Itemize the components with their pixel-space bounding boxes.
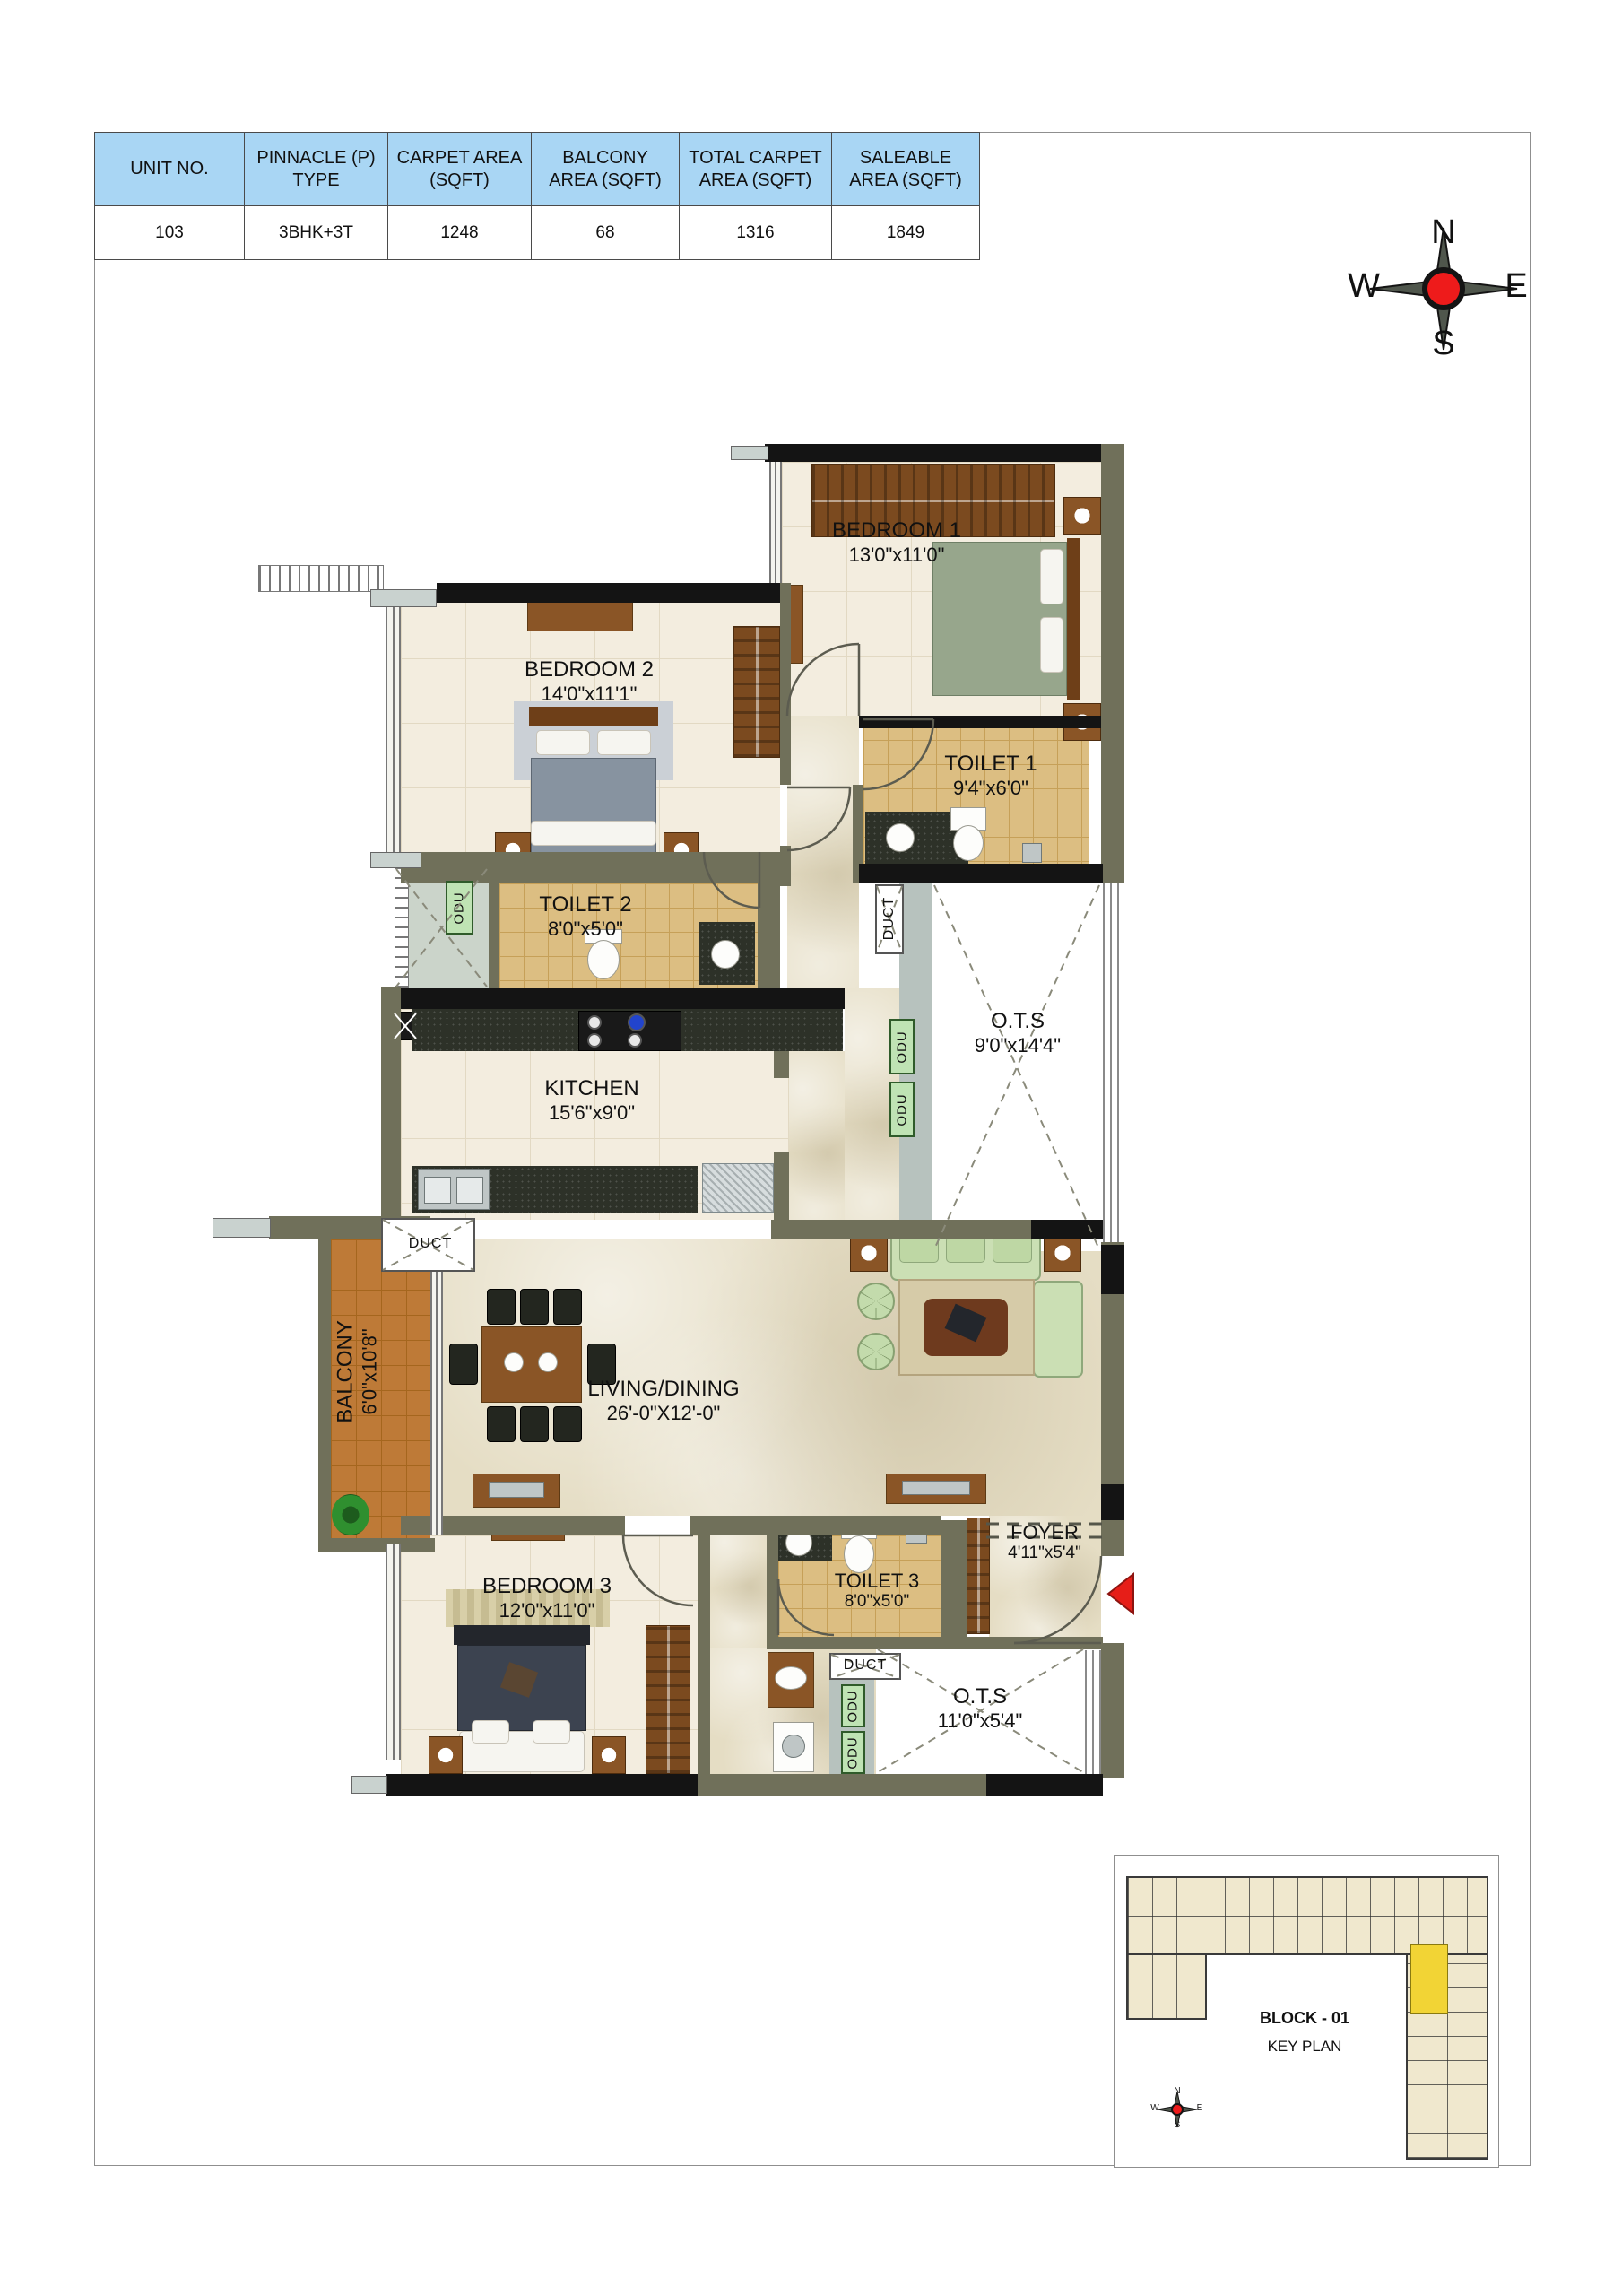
- compass-east-label: E: [1494, 267, 1539, 306]
- floor-ots-upper: [932, 883, 1101, 1251]
- wc-bowl: [844, 1535, 874, 1573]
- table-header-total-carpet: TOTAL CARPET AREA (SQFT): [680, 133, 832, 206]
- fridge: [702, 1163, 774, 1213]
- washing-machine-drum: [782, 1735, 805, 1758]
- wall-segment: [780, 846, 791, 886]
- key-plan-building-top: [1126, 1876, 1488, 1955]
- key-plan-compass-south-label: S: [1168, 2120, 1186, 2130]
- wash-basin: [775, 1666, 807, 1690]
- pillow: [597, 730, 651, 755]
- room-label-balcony: BALCONY 6'0"x10'8": [334, 1282, 381, 1461]
- room-dims: 4'11"x5'4": [984, 1544, 1105, 1563]
- key-plan-title: KEY PLAN: [1237, 2038, 1372, 2056]
- window-sill: [351, 1776, 387, 1794]
- window-bedroom1-left: [769, 462, 782, 583]
- sink-bowl: [456, 1177, 483, 1204]
- wall-segment: [1101, 1484, 1124, 1520]
- room-label-bedroom3: BEDROOM 3 12'0"x11'0": [426, 1574, 668, 1622]
- room-name: TOILET 3: [810, 1570, 944, 1592]
- unit-area-table: UNIT NO. PINNACLE (P) TYPE CARPET AREA (…: [94, 132, 980, 260]
- duct-label-upper: DUCT: [881, 887, 898, 950]
- pouf: [857, 1333, 895, 1370]
- room-label-ots-upper: O.T.S 9'0"x14'4": [932, 1009, 1103, 1057]
- chair: [487, 1289, 516, 1325]
- wall-segment: [318, 1239, 331, 1552]
- window-sill: [370, 852, 421, 868]
- wall-segment: [780, 583, 791, 785]
- compass-south-label: S: [1421, 325, 1466, 363]
- stove-burner: [587, 1033, 602, 1048]
- plant: [332, 1494, 369, 1535]
- table-value-saleable-area: 1849: [832, 206, 980, 260]
- duct-label-balcony: DUCT: [387, 1236, 473, 1252]
- wall-segment: [318, 1538, 435, 1552]
- room-label-bedroom2: BEDROOM 2 14'0"x11'1": [481, 657, 697, 705]
- chair: [449, 1344, 478, 1385]
- room-dims: 9'0"x14'4": [932, 1034, 1103, 1057]
- wc-bowl: [953, 825, 984, 861]
- room-dims: 8'0"x5'0": [478, 918, 693, 940]
- room-label-living: LIVING/DINING 26'-0"X12'-0": [556, 1377, 771, 1424]
- floor-passage-kitchen-side: [789, 1051, 845, 1239]
- sofa-corner: [1033, 1281, 1083, 1378]
- sink-bowl: [424, 1177, 451, 1204]
- room-name: BEDROOM 1: [789, 518, 1004, 544]
- sofa-cushion: [946, 1236, 985, 1263]
- hatch-ledge: [395, 868, 409, 988]
- side-table: [1044, 1234, 1081, 1272]
- wall-segment: [437, 583, 786, 603]
- plate: [538, 1352, 558, 1372]
- room-dims: 8'0"x5'0": [810, 1592, 944, 1612]
- floor-plan-page: { "table": { "headers": ["UNIT NO.", "PI…: [0, 0, 1622, 2296]
- room-dims: 26'-0"X12'-0": [556, 1402, 771, 1424]
- bed: [531, 758, 656, 867]
- wall-segment: [401, 988, 845, 1009]
- pillow: [472, 1720, 509, 1744]
- pillow: [1040, 617, 1063, 673]
- table-value-unit-no: 103: [95, 206, 245, 260]
- hatch-ledge: [258, 565, 384, 592]
- stove-burner: [628, 1013, 646, 1031]
- wall-segment: [1101, 1245, 1124, 1294]
- floor-passage-vestibule: [787, 716, 859, 1009]
- room-name: KITCHEN: [484, 1076, 699, 1101]
- room-name: FOYER: [984, 1521, 1105, 1544]
- table-header-type: PINNACLE (P) TYPE: [245, 133, 388, 206]
- table-value-balcony-area: 68: [532, 206, 680, 260]
- side-table: [1063, 497, 1101, 535]
- tv-shelf: [489, 1482, 544, 1498]
- headboard: [529, 707, 658, 726]
- room-label-bedroom1: BEDROOM 1 13'0"x11'0": [789, 518, 1004, 566]
- table-value-carpet-area: 1248: [388, 206, 532, 260]
- key-plan-block-label: BLOCK - 01: [1237, 2009, 1372, 2028]
- table-header-carpet-area: CARPET AREA (SQFT): [388, 133, 532, 206]
- wall-segment: [767, 1516, 778, 1648]
- room-dims: 14'0"x11'1": [481, 683, 697, 705]
- duct-label-lower: DUCT: [829, 1657, 901, 1674]
- room-dims: 12'0"x11'0": [426, 1599, 668, 1622]
- odu-box: ODU: [446, 881, 473, 935]
- odu-box: ODU: [841, 1731, 865, 1774]
- key-plan-compass-east-label: E: [1191, 2103, 1209, 2113]
- room-name: LIVING/DINING: [556, 1377, 771, 1402]
- chair: [520, 1406, 549, 1442]
- balcony-slider: [430, 1247, 443, 1535]
- table-value-type: 3BHK+3T: [245, 206, 388, 260]
- chair: [520, 1289, 549, 1325]
- compass-west-label: W: [1341, 267, 1386, 306]
- room-dims: 9'4"x6'0": [910, 777, 1071, 799]
- chair: [553, 1289, 582, 1325]
- wall-segment: [1031, 1220, 1103, 1239]
- room-label-toilet2: TOILET 2 8'0"x5'0": [478, 892, 693, 940]
- room-name: BALCONY: [334, 1282, 359, 1461]
- stove-burner: [628, 1033, 642, 1048]
- wash-basin: [711, 940, 740, 969]
- wall-segment: [386, 1774, 698, 1796]
- headboard: [1067, 538, 1080, 700]
- room-dims: 15'6"x9'0": [484, 1101, 699, 1124]
- wardrobe: [646, 1625, 690, 1774]
- compass-north-label: N: [1421, 213, 1466, 252]
- wall-segment: [381, 987, 401, 1239]
- side-table: [592, 1736, 626, 1774]
- side-table: [850, 1234, 888, 1272]
- pillow: [533, 1720, 570, 1744]
- wall-segment: [778, 1516, 941, 1535]
- room-name: BEDROOM 3: [426, 1574, 668, 1599]
- key-plan-highlighted-unit: [1410, 1944, 1448, 2014]
- wall-segment: [859, 716, 1101, 728]
- odu-box: ODU: [889, 1019, 915, 1074]
- wall-segment: [941, 1520, 967, 1649]
- console-shelf: [902, 1481, 970, 1495]
- odu-box: ODU: [841, 1684, 865, 1727]
- room-name: O.T.S: [932, 1009, 1103, 1034]
- table-value-total-carpet: 1316: [680, 206, 832, 260]
- room-dims: 11'0"x5'4": [895, 1709, 1065, 1732]
- odu-label: ODU: [895, 1031, 910, 1063]
- window-bedroom2-left: [386, 607, 401, 852]
- key-plan-compass-north-label: N: [1168, 2086, 1186, 2096]
- pouf: [857, 1283, 895, 1320]
- ots-railing: [1103, 883, 1123, 1242]
- chair: [487, 1406, 516, 1442]
- wall-segment: [401, 852, 780, 883]
- window-sill: [370, 589, 437, 607]
- room-name: BEDROOM 2: [481, 657, 697, 683]
- table-header-balcony-area: BALCONY AREA (SQFT): [532, 133, 680, 206]
- wall-segment: [767, 1637, 946, 1649]
- sofa-cushion: [993, 1236, 1032, 1263]
- window-sill: [731, 446, 768, 460]
- odu-label: ODU: [895, 1093, 910, 1126]
- odu-label: ODU: [846, 1690, 861, 1722]
- plate: [504, 1352, 524, 1372]
- wardrobe: [733, 626, 780, 758]
- table-header-unit-no: UNIT NO.: [95, 133, 245, 206]
- odu-label: ODU: [846, 1736, 861, 1769]
- window-bedroom3-left: [386, 1544, 401, 1760]
- kitchen-sink: [418, 1169, 490, 1210]
- room-name: O.T.S: [895, 1684, 1065, 1709]
- room-label-foyer: FOYER 4'11"x5'4": [984, 1521, 1105, 1563]
- key-plan-building-left-arm: [1126, 1953, 1207, 2020]
- room-label-toilet1: TOILET 1 9'4"x6'0": [910, 752, 1071, 799]
- wash-basin: [886, 823, 915, 852]
- room-dims: 6'0"x10'8": [358, 1282, 380, 1461]
- pillow: [536, 730, 590, 755]
- wall-segment: [859, 864, 1103, 883]
- headboard: [454, 1625, 590, 1645]
- shower-point: [1022, 843, 1042, 863]
- room-label-kitchen: KITCHEN 15'6"x9'0": [484, 1076, 699, 1124]
- wall-segment: [698, 1516, 710, 1774]
- wall-segment: [774, 1051, 789, 1078]
- room-dims: 13'0"x11'0": [789, 544, 1004, 566]
- room-name: TOILET 2: [478, 892, 693, 918]
- table-header-saleable-area: SALEABLE AREA (SQFT): [832, 133, 980, 206]
- wall-segment: [1101, 1643, 1124, 1778]
- pillow: [1040, 549, 1063, 604]
- wc-bowl: [587, 940, 620, 979]
- key-plan-compass-west-label: W: [1146, 2103, 1164, 2113]
- wall-segment: [758, 883, 780, 988]
- wall-segment: [765, 444, 1106, 462]
- room-label-toilet3: TOILET 3 8'0"x5'0": [810, 1570, 944, 1612]
- sofa-cushion: [899, 1236, 939, 1263]
- wall-segment: [698, 1774, 986, 1796]
- stove-burner: [587, 1015, 602, 1030]
- odu-box: ODU: [889, 1082, 915, 1137]
- room-label-ots-lower: O.T.S 11'0"x5'4": [895, 1684, 1065, 1732]
- window-sill: [213, 1218, 271, 1238]
- odu-label: ODU: [452, 891, 467, 924]
- wall-segment: [1101, 444, 1124, 883]
- bed-sheet: [531, 821, 656, 846]
- wall-segment: [941, 1637, 1103, 1649]
- ots-railing: [1085, 1650, 1101, 1774]
- wall-segment: [986, 1774, 1103, 1796]
- side-table: [429, 1736, 463, 1774]
- floor-passage-b3: [710, 1516, 768, 1648]
- room-name: TOILET 1: [910, 752, 1071, 777]
